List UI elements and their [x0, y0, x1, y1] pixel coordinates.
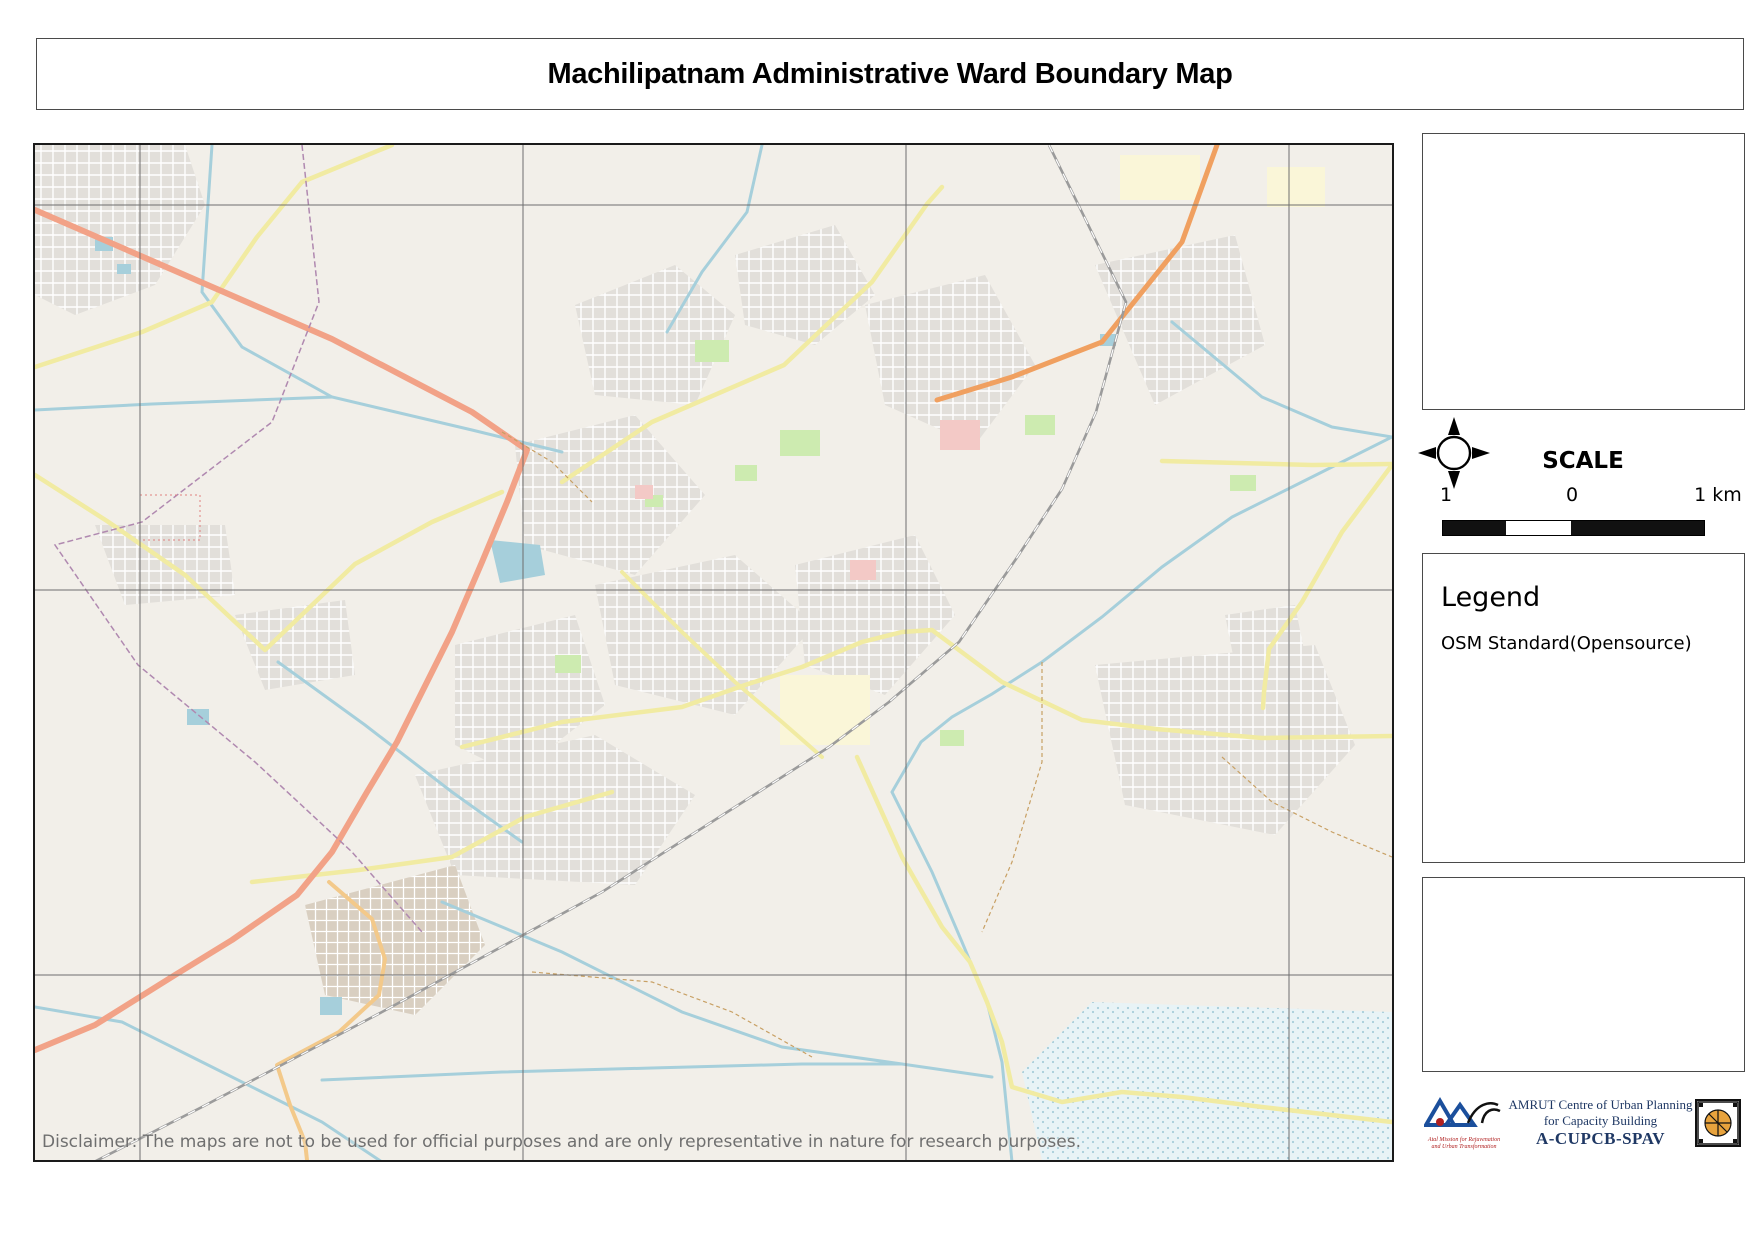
scale-heading: SCALE: [1518, 448, 1648, 474]
map-title-box: Machilipatnam Administrative Ward Bounda…: [36, 38, 1744, 110]
scale-bar: [1442, 520, 1705, 536]
map-labels-layer: [35, 145, 1392, 1160]
page: Machilipatnam Administrative Ward Bounda…: [0, 0, 1754, 1240]
amrut-tagline-2: and Urban Transformation: [1422, 1144, 1506, 1151]
credit-line-3: A-CUPCB-SPAV: [1506, 1129, 1695, 1149]
legend-box: Legend OSM Standard(Opensource): [1422, 553, 1745, 863]
credit-text: AMRUT Centre of Urban Planning for Capac…: [1506, 1097, 1695, 1149]
scale-left-label: 1: [1440, 484, 1452, 506]
project-title-box: [1422, 133, 1745, 410]
page-title: Machilipatnam Administrative Ward Bounda…: [548, 58, 1233, 91]
spav-logo: [1695, 1099, 1741, 1147]
credit-line-1: AMRUT Centre of Urban Planning: [1506, 1097, 1695, 1113]
description-box: [1422, 877, 1745, 1072]
basemap-source-note: OSM Standard(Opensource): [1441, 633, 1744, 654]
amrut-logo: Atal Mission for Rejuvenation and Urban …: [1422, 1095, 1506, 1151]
scale-mid-label: 0: [1566, 484, 1578, 506]
credits-block: Atal Mission for Rejuvenation and Urban …: [1422, 1088, 1745, 1158]
credit-line-2: for Capacity Building: [1506, 1113, 1695, 1129]
north-arrow-icon: [1412, 407, 1496, 503]
amrut-tagline-1: Atal Mission for Rejuvenation: [1422, 1137, 1506, 1144]
legend-heading: Legend: [1441, 582, 1744, 613]
scale-right-label: 1 km: [1694, 484, 1742, 506]
disclaimer-text: Disclaimer: The maps are not to be used …: [42, 1132, 1081, 1152]
map-canvas-area: Disclaimer: The maps are not to be used …: [33, 143, 1394, 1162]
compass-scale-block: SCALE 1 0 1 km: [1422, 412, 1745, 548]
